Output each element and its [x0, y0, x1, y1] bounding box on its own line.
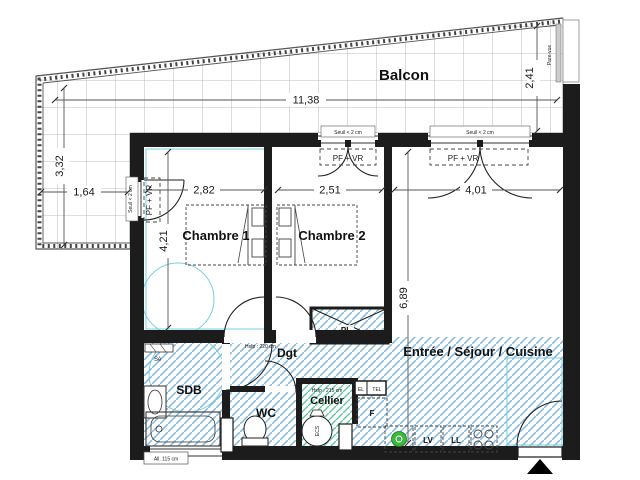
- seuil-sejour-label: Seuil < 2 cm: [466, 130, 494, 136]
- tel-label: TEL: [372, 387, 381, 393]
- dim-balcon-length: 11,38: [293, 95, 320, 107]
- wall-left-2: [130, 218, 144, 460]
- door-sill-chambre1: [224, 330, 264, 343]
- towel-dryer-label: Sè: [154, 357, 162, 363]
- door-sill-chambre2: [276, 330, 316, 343]
- washbasin: [144, 386, 166, 418]
- wall-chambre2-sejour: [384, 147, 392, 343]
- room-label-dgt: Dgt: [277, 346, 297, 360]
- wall-bottom-2: [222, 446, 518, 460]
- water-heater-label: ECS: [315, 425, 321, 436]
- dim-sejour-depth: 6,89: [398, 287, 410, 308]
- door-cellier-leaf: [339, 424, 352, 450]
- wall-cellier-top: [296, 378, 358, 384]
- floor-plan: Balcon Pare-vue PL: [0, 0, 640, 480]
- allege-label: All. 115 cm: [154, 457, 178, 463]
- door-entrance-leaf: [518, 447, 562, 457]
- door-sill-wc: [265, 386, 296, 392]
- sink-icon: [392, 432, 407, 447]
- dishwasher-label: LV: [423, 436, 433, 445]
- hsfp-cellier-label: Hsfp : 215 cm: [312, 388, 343, 394]
- wall-left-1: [130, 133, 144, 180]
- hsfp-dgt-label: Hsfp : 220 cm: [245, 344, 276, 350]
- room-label-sejour: Entrée / Séjour / Cuisine: [403, 344, 553, 359]
- chambre1-turning-circle: [142, 263, 214, 335]
- dim-sejour-width: 4,01: [465, 185, 486, 197]
- pare-vue-screen: [556, 24, 561, 82]
- wall-bedrooms-bottom-3: [316, 330, 392, 343]
- wall-chambre1-chambre2: [264, 147, 272, 330]
- room-label-sdb: SDB: [176, 383, 202, 397]
- dim-balcon-right-depth: 2,41: [524, 67, 536, 88]
- washer-label: LL: [451, 436, 461, 445]
- wall-bedrooms-bottom-2: [264, 330, 276, 343]
- dim-balcon-left-depth: 1,64: [73, 187, 94, 199]
- room-label-cellier: Cellier: [310, 395, 344, 407]
- wall-top-3: [532, 133, 563, 147]
- room-label-wc: WC: [256, 406, 276, 420]
- building-edge: [563, 20, 579, 82]
- room-label-chambre1: Chambre 1: [182, 228, 249, 243]
- door-wc-leaf: [221, 418, 233, 452]
- door-sill-sdb: [222, 344, 230, 390]
- wall-top-1: [130, 133, 318, 147]
- pare-vue-label: Pare-vue: [547, 45, 553, 66]
- toilet-tank: [242, 438, 268, 446]
- wall-top-2: [378, 133, 428, 147]
- dim-balcon-left-length: 3,32: [54, 155, 66, 176]
- wall-right: [563, 84, 580, 460]
- fridge-label: F: [370, 409, 375, 418]
- el-tel-box: EL TEL: [355, 381, 386, 395]
- wall-bedrooms-bottom-1: [144, 330, 224, 343]
- wall-wc-cellier: [296, 384, 302, 446]
- window-hinges: [133, 140, 535, 221]
- pfvr-chambre2-label: PF + VR: [333, 154, 364, 163]
- room-label-chambre2: Chambre 2: [298, 228, 365, 243]
- entrance-arrow: [527, 459, 553, 474]
- dim-chambre1-depth: 4,21: [158, 230, 170, 251]
- towel-dryer: [145, 344, 173, 352]
- seuil-chambre2-label: Seuil < 2 cm: [334, 130, 362, 136]
- pfvr-sejour-label: PF + VR: [448, 154, 479, 163]
- floor-plan-page: Balcon Pare-vue PL: [0, 0, 640, 480]
- room-label-balcon: Balcon: [379, 67, 429, 84]
- dim-chambre2-width: 2,51: [319, 185, 340, 197]
- dim-chambre1-width: 2,82: [193, 185, 214, 197]
- el-label: EL: [358, 387, 364, 393]
